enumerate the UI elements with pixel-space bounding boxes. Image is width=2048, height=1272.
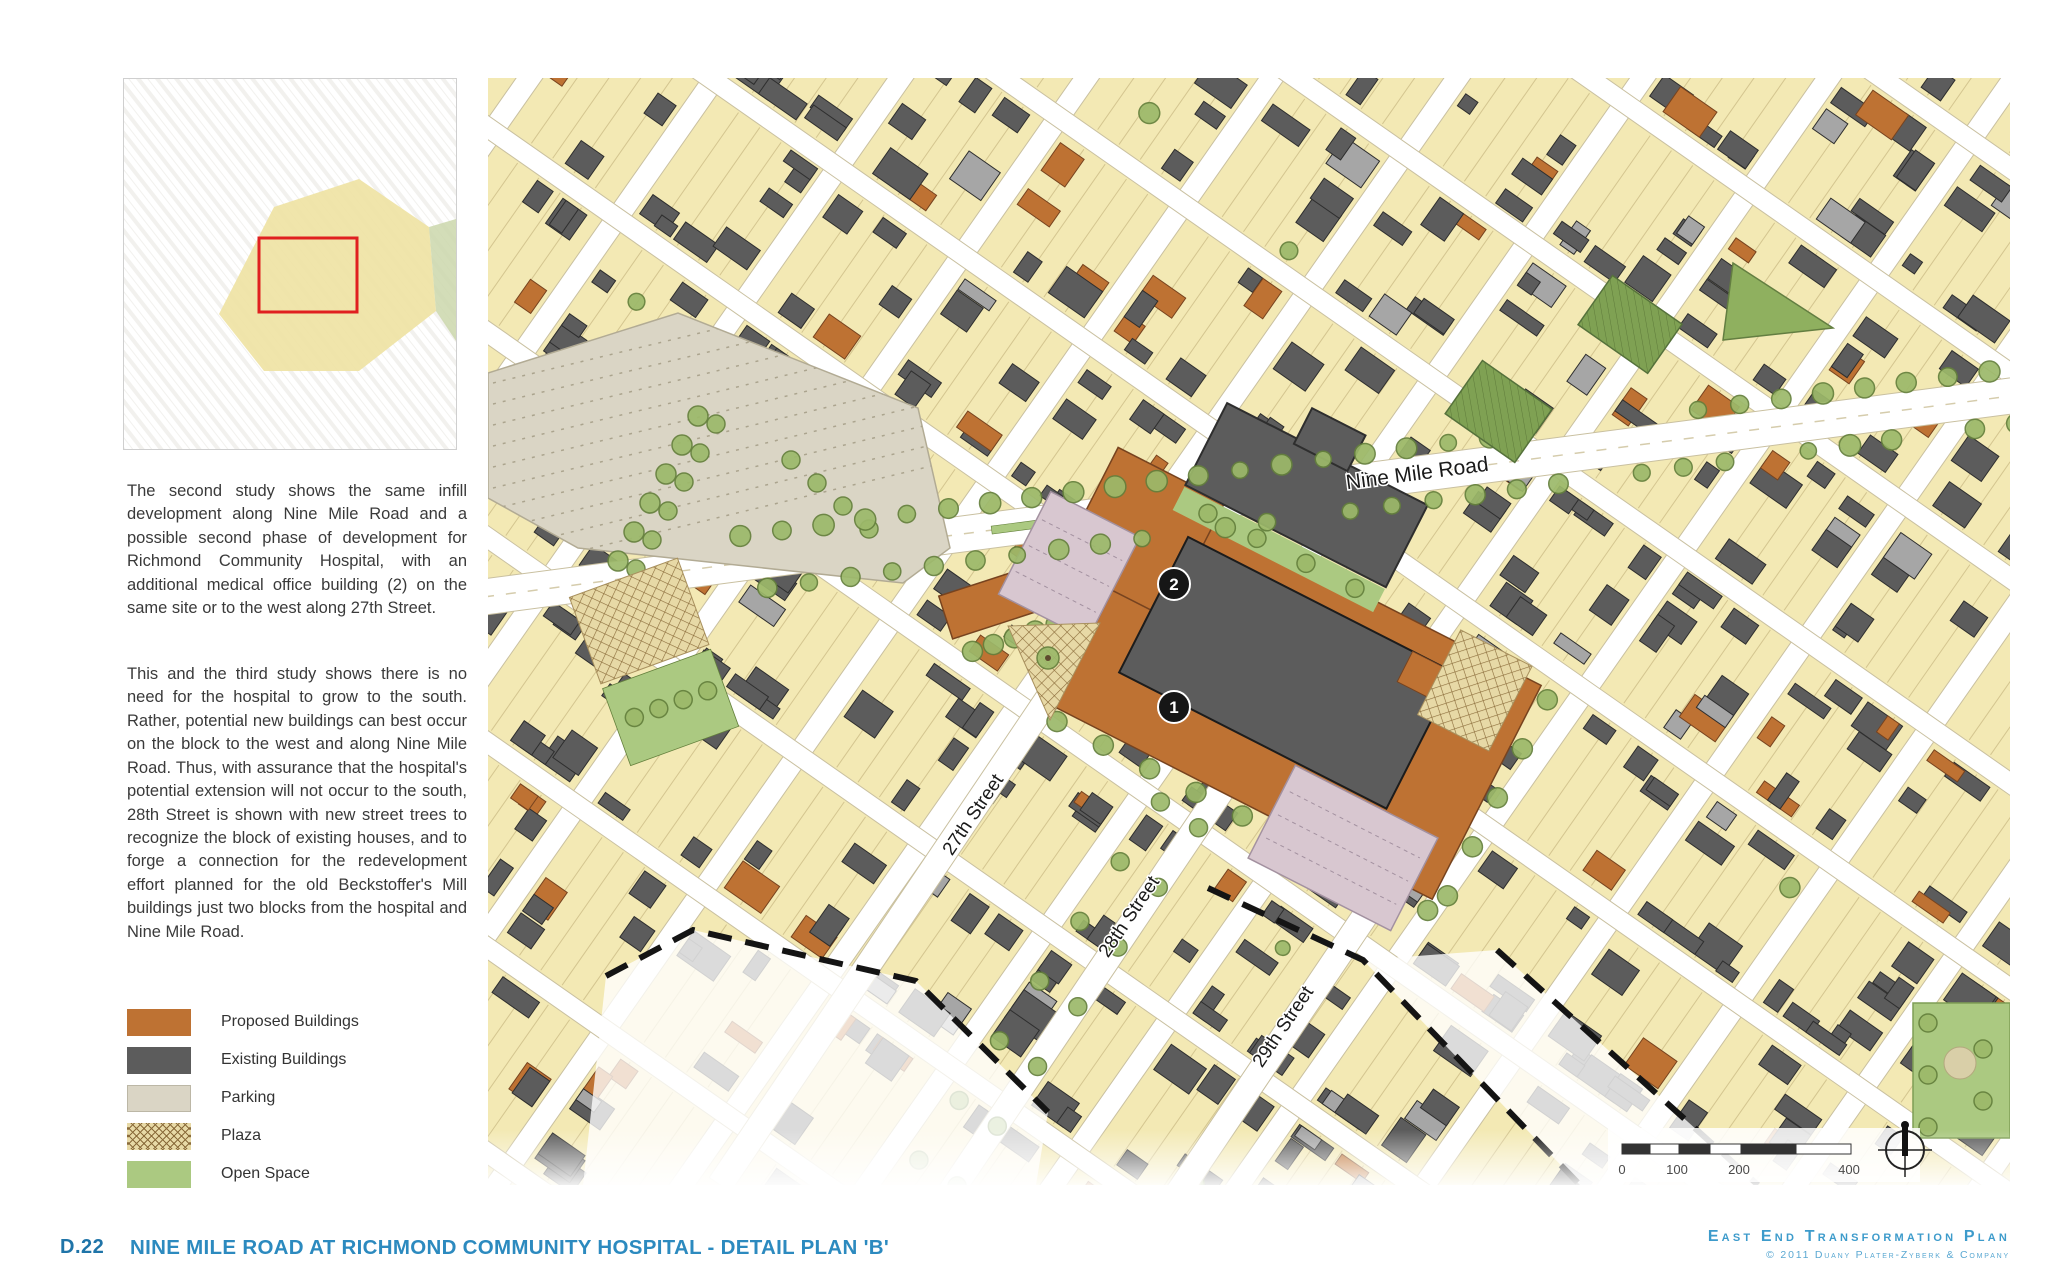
scale-label-400: 400: [1838, 1162, 1860, 1177]
plan-name: East End Transformation Plan: [1708, 1228, 2010, 1246]
marker-2-number: 2: [1169, 575, 1178, 594]
locator-map-image: [124, 79, 456, 449]
plaza-swatch: [127, 1123, 191, 1150]
copyright: © 2011 Duany Plater-Zyberk & Company: [1708, 1249, 2010, 1261]
legend-item-parking: Parking: [127, 1079, 467, 1117]
scale-label-100: 100: [1666, 1162, 1688, 1177]
legend-item-plaza: Plaza: [127, 1117, 467, 1155]
page-number: D.22: [60, 1236, 104, 1259]
legend-item-open-space: Open Space: [127, 1155, 467, 1193]
scale-bar-segments: [1608, 1128, 1920, 1182]
legend-item-existing-buildings: Existing Buildings: [127, 1041, 467, 1079]
scale-bar: 0 100 200 400: [1608, 1128, 1920, 1182]
legend-label: Parking: [221, 1089, 275, 1107]
detail-plan-map: 0 100 200 400 Nine Mile Road 27th Street…: [488, 78, 2010, 1185]
building-marker-1: 1: [1158, 691, 1190, 723]
map-legend: Proposed Buildings Existing Buildings Pa…: [127, 1003, 467, 1193]
proposed-buildings-swatch: [127, 1009, 191, 1036]
study-paragraph-2: This and the third study shows there is …: [127, 663, 467, 944]
plan-map-image: 0 100 200 400 Nine Mile Road 27th Street…: [488, 78, 2010, 1185]
plan-artwork: [488, 78, 2010, 1185]
page-title: NINE MILE ROAD AT RICHMOND COMMUNITY HOS…: [130, 1236, 889, 1260]
legend-label: Proposed Buildings: [221, 1013, 359, 1031]
building-marker-2: 2: [1158, 568, 1190, 600]
scale-label-0: 0: [1618, 1162, 1625, 1177]
open-space-swatch: [127, 1161, 191, 1188]
footer-plan-block: East End Transformation Plan © 2011 Duan…: [1708, 1228, 2010, 1261]
marker-1-number: 1: [1169, 698, 1178, 717]
study-paragraph-1: The second study shows the same infill d…: [127, 480, 467, 621]
legend-label: Existing Buildings: [221, 1051, 346, 1069]
legend-label: Open Space: [221, 1165, 310, 1183]
locator-map: [123, 78, 457, 450]
page: The second study shows the same infill d…: [0, 0, 2048, 1272]
parking-swatch: [127, 1085, 191, 1112]
legend-label: Plaza: [221, 1127, 261, 1145]
scale-label-200: 200: [1728, 1162, 1750, 1177]
legend-item-proposed-buildings: Proposed Buildings: [127, 1003, 467, 1041]
existing-buildings-swatch: [127, 1047, 191, 1074]
